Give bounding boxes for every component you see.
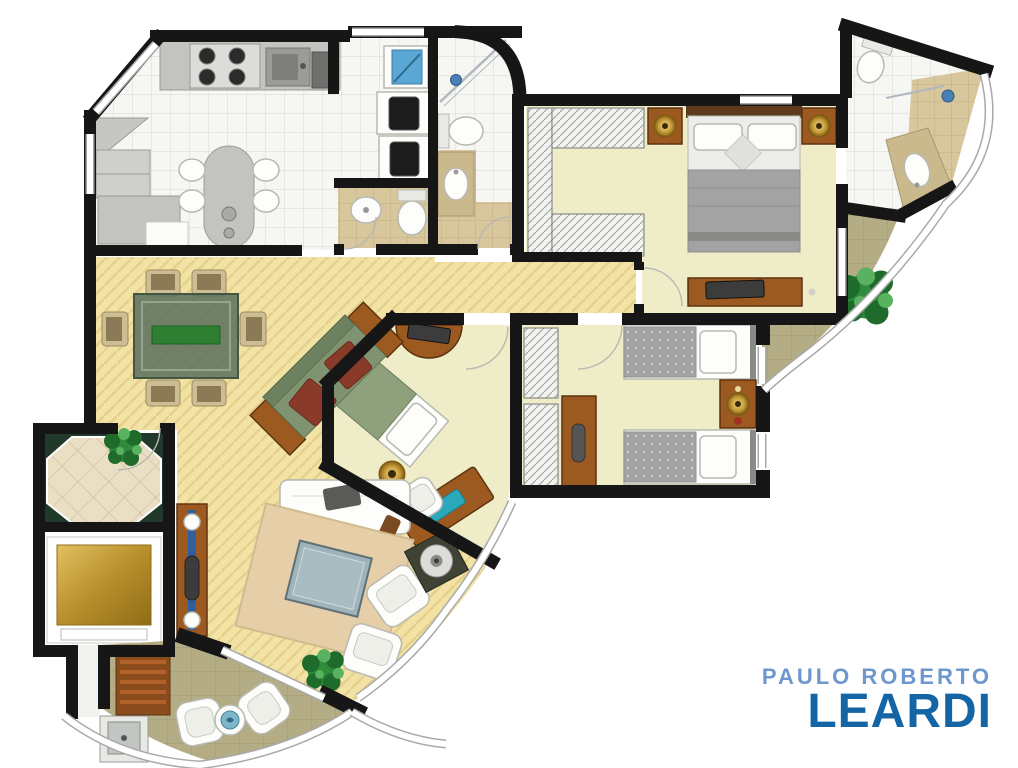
entry-hall-marble bbox=[47, 437, 161, 523]
brand-logo: PAULO ROBERTO LEARDI bbox=[762, 666, 992, 737]
stove-burner bbox=[199, 69, 215, 85]
shower-head bbox=[451, 75, 462, 86]
tray bbox=[185, 556, 199, 600]
ensuite-shower-head bbox=[942, 90, 954, 102]
closet-hatch bbox=[552, 214, 644, 256]
service-area bbox=[377, 46, 429, 180]
pillow bbox=[748, 124, 796, 150]
corridor-floor bbox=[78, 645, 100, 717]
wc-toilet-tank bbox=[398, 190, 426, 201]
stove-burner bbox=[199, 48, 215, 64]
plant bbox=[302, 649, 344, 691]
twin-quilt-1 bbox=[624, 327, 696, 377]
elevator-car bbox=[57, 545, 151, 625]
pillow bbox=[700, 436, 736, 478]
cooktop-knob bbox=[224, 228, 234, 238]
washer-door bbox=[389, 97, 419, 130]
stool bbox=[253, 190, 279, 212]
stove-burner bbox=[229, 48, 245, 64]
floorplan-image: PAULO ROBERTO LEARDI bbox=[0, 0, 1018, 768]
bowl bbox=[184, 514, 200, 530]
kitchen-sink-basin bbox=[272, 54, 298, 80]
pillow bbox=[700, 331, 736, 373]
wardrobe-hatch bbox=[524, 404, 558, 490]
bathroom-beige-zone bbox=[476, 202, 518, 248]
dryer-door bbox=[390, 142, 419, 176]
stool bbox=[179, 190, 205, 212]
stool bbox=[253, 159, 279, 181]
cooktop-knob bbox=[222, 207, 236, 221]
closet-hatch bbox=[552, 108, 644, 148]
cutting-board bbox=[146, 222, 188, 246]
twin-quilt-2 bbox=[624, 432, 696, 482]
toilet-tank bbox=[438, 114, 449, 148]
elevator-door bbox=[61, 629, 147, 640]
dresser-handle bbox=[572, 424, 585, 462]
tv bbox=[706, 280, 765, 299]
table-runner bbox=[152, 326, 220, 344]
wardrobe-hatch bbox=[524, 328, 558, 398]
brand-name-bottom: LEARDI bbox=[762, 688, 992, 737]
floorplan-svg bbox=[0, 0, 1018, 768]
bowl bbox=[184, 612, 200, 628]
stool bbox=[179, 159, 205, 181]
closet-hatch bbox=[528, 108, 552, 256]
kitchen-faucet bbox=[300, 63, 306, 69]
stove-burner bbox=[229, 69, 245, 85]
toilet bbox=[449, 117, 483, 145]
wc-toilet bbox=[398, 201, 426, 235]
